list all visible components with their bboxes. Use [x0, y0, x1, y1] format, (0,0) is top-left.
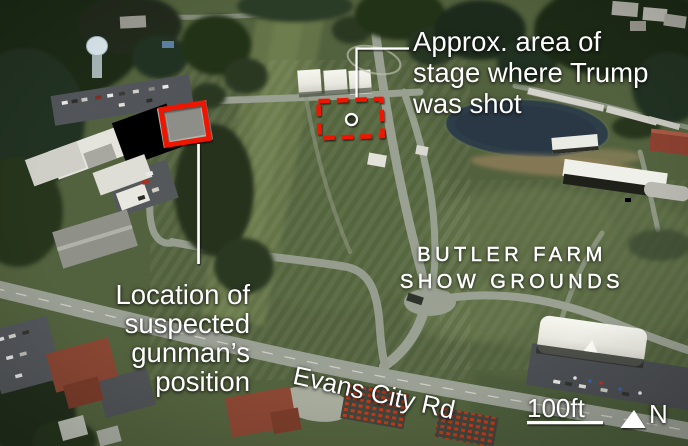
venue-name-label: BUTLER FARM SHOW GROUNDS — [366, 242, 658, 296]
stage-annotation-label: Approx. area of stage where Trump was sh… — [413, 26, 648, 119]
gunman-annotation-label: Location of suspected gunman’s position — [58, 280, 250, 396]
scale-bar-label: 100ft — [527, 393, 585, 424]
stage-point-marker — [346, 114, 357, 125]
aerial-map-graphic: Approx. area of stage where Trump was sh… — [0, 0, 688, 446]
compass-label: N — [649, 399, 668, 430]
